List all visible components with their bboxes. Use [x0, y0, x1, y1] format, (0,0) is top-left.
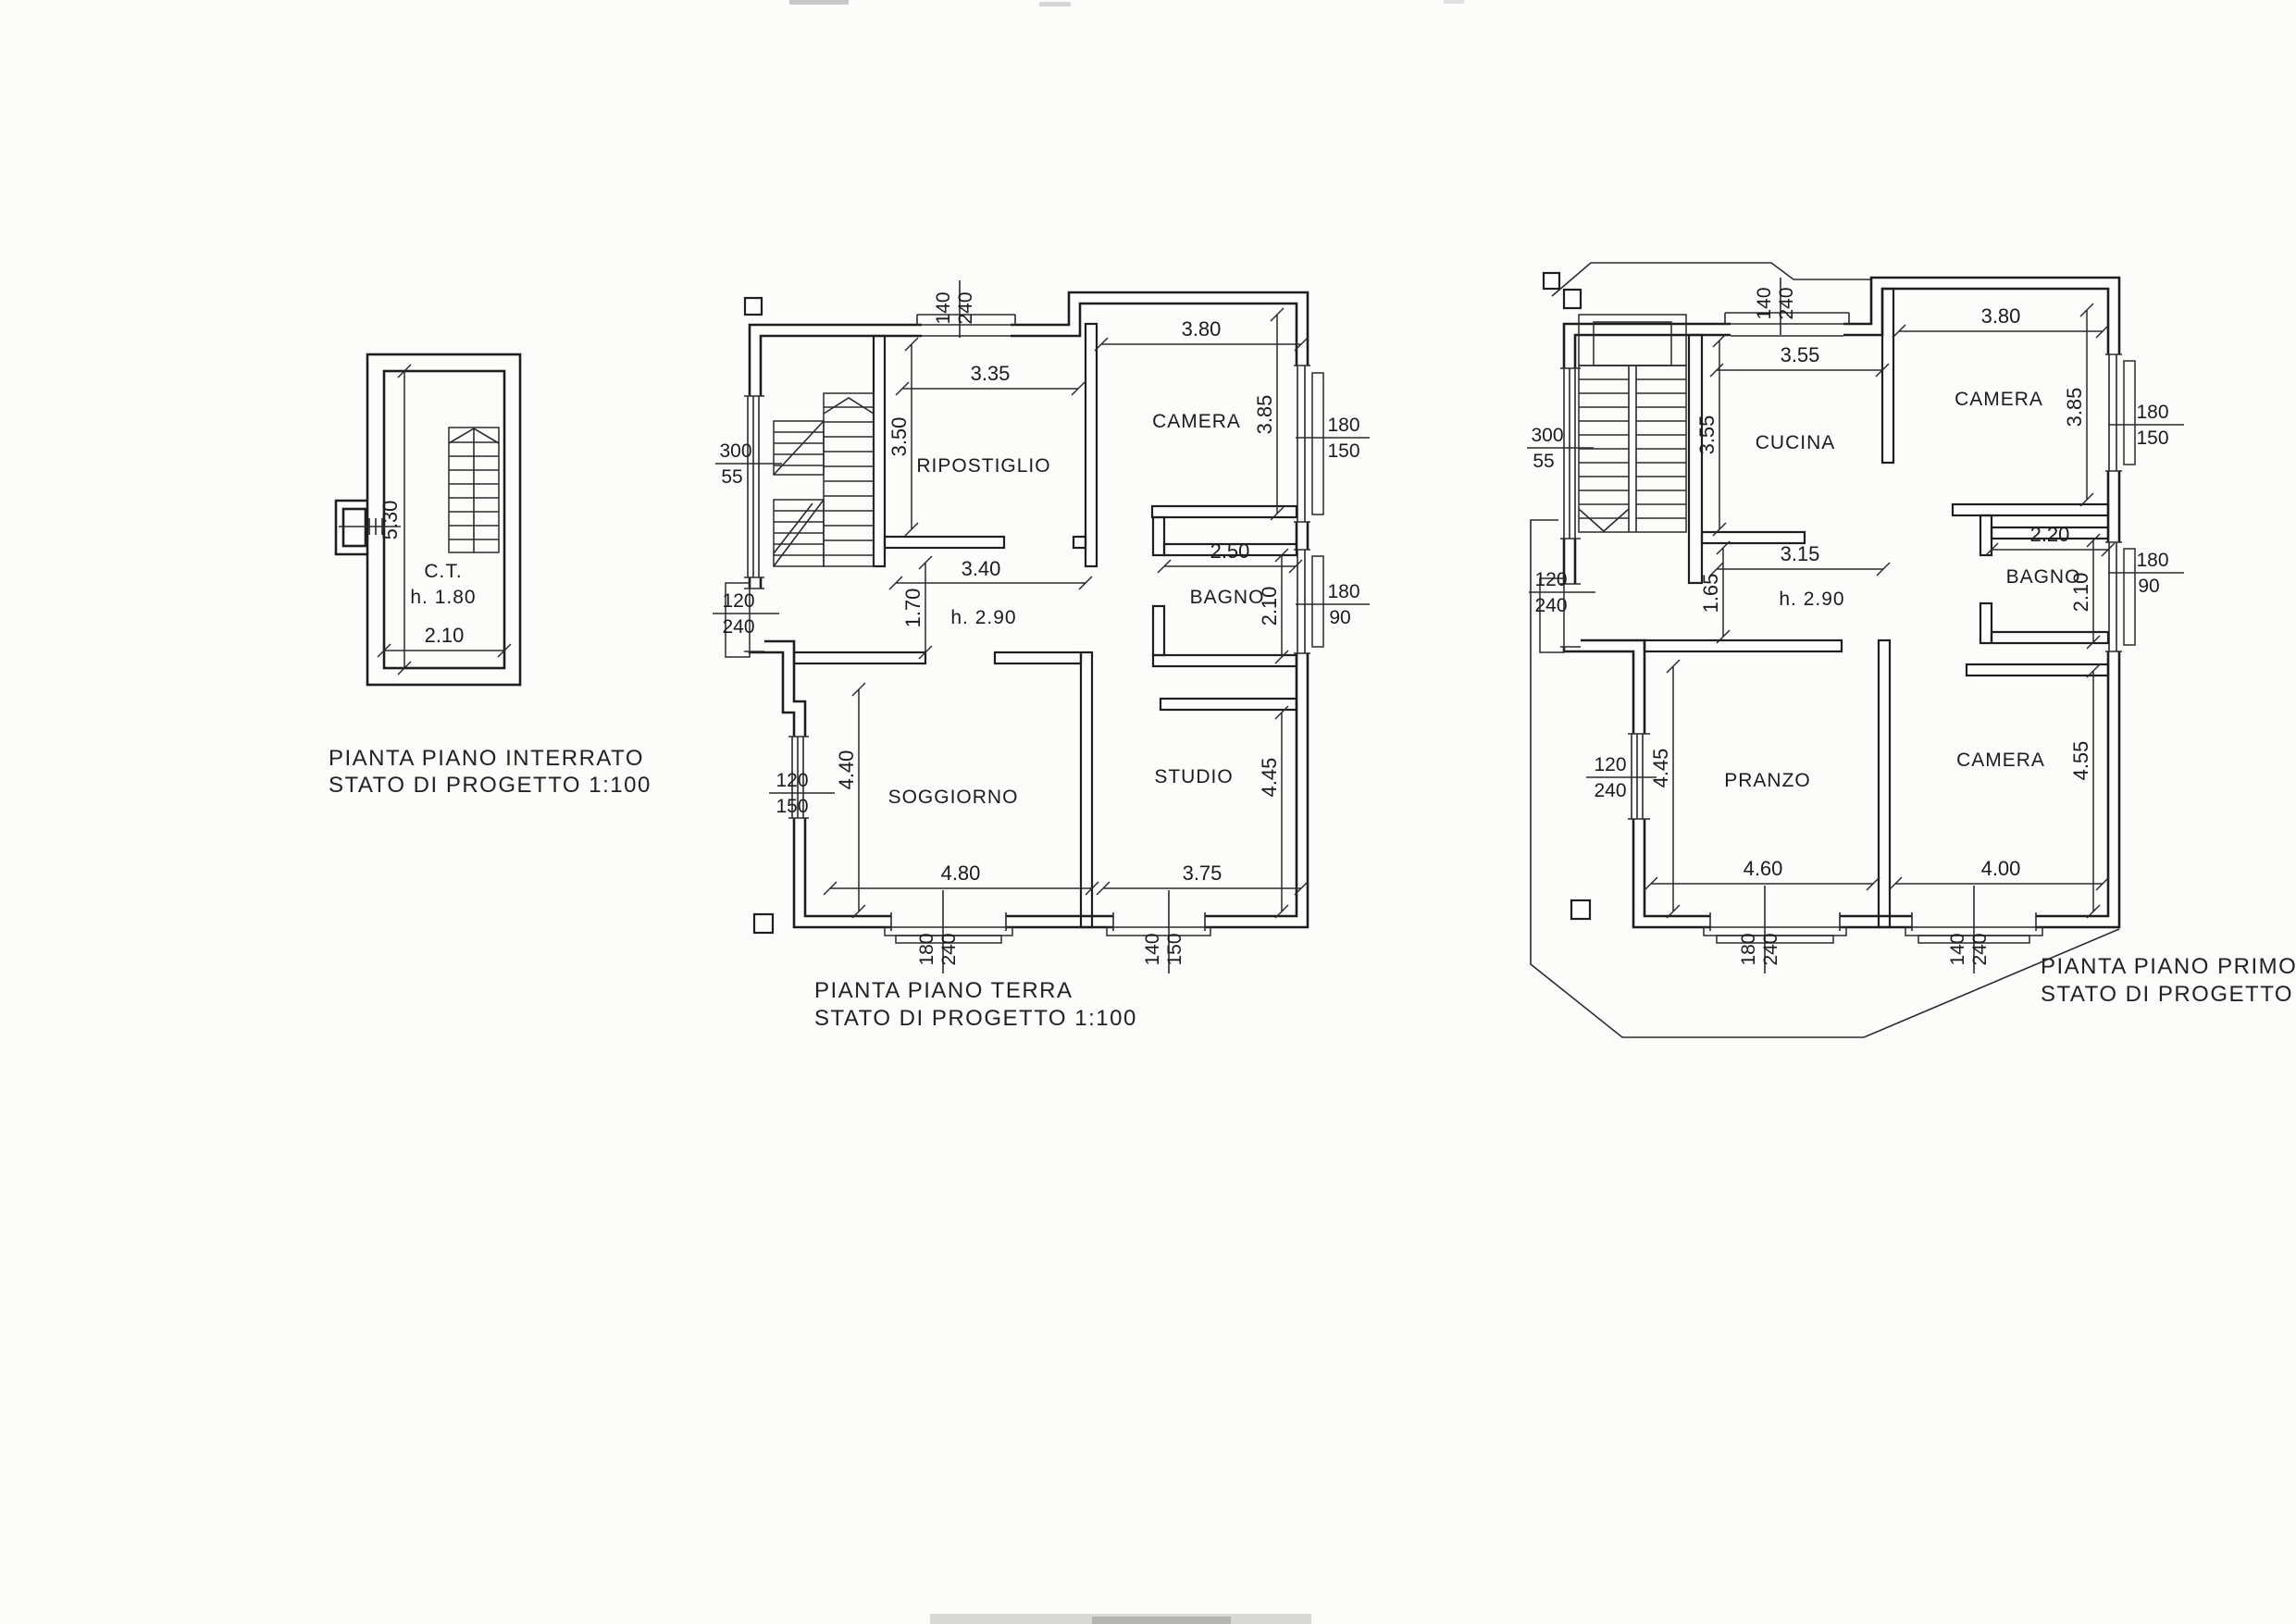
dim-camera-b-h: 4.55	[2069, 741, 2092, 781]
label-pranzo-win-n: 120	[1594, 754, 1626, 775]
label-camera-win-n-primo: 180	[2136, 402, 2168, 423]
room-label-camera-bottom: CAMERA	[1956, 750, 2045, 771]
dim-pranzo-w: 4.60	[1744, 857, 1783, 880]
height-label-terra: h. 2.90	[950, 607, 1016, 628]
room-label-soggiorno: SOGGIORNO	[888, 787, 1019, 808]
primo-caption: PIANTA PIANO PRIMO STATO DI PROGETTO	[2041, 954, 2296, 1007]
dim-camera-w: 3.80	[1182, 317, 1222, 341]
label-studio-win-d: 150	[1164, 933, 1185, 965]
dim-cucina-h: 3.55	[1695, 415, 1719, 455]
plan-terra: 3.35 3.50 3.40 3.80 3.85 2.50 2.10 1.70 …	[713, 280, 1370, 1031]
dim-cucina-bottom: 3.15	[1781, 542, 1820, 565]
dim-interrato-depth: 5.30	[379, 501, 402, 540]
dim-camera-top-h: 3.85	[2063, 388, 2086, 428]
room-label-pranzo: PRANZO	[1724, 770, 1811, 791]
label-top-door-d-primo: 240	[1776, 287, 1797, 319]
interrato-staircase	[449, 428, 499, 552]
label-bagno-win-d: 90	[1329, 607, 1350, 628]
label-pranzo-door-n: 180	[1738, 933, 1759, 965]
terra-staircase	[774, 393, 874, 566]
room-label-studio: STUDIO	[1154, 766, 1233, 787]
plan-primo: 3.55 3.55 3.15 1.65 3.80 3.85 2.20 2.10 …	[1527, 263, 2296, 1037]
primo-fraction-labels: 300 55 120 240 120 240 180 150 180 90 14…	[1527, 278, 2184, 973]
room-label-bagno-primo: BAGNO	[2006, 566, 2081, 588]
label-top-door-d: 240	[955, 291, 976, 324]
caption-terra-line1: PIANTA PIANO TERRA	[814, 978, 1074, 1003]
label-entry-door-n-primo: 120	[1534, 569, 1567, 590]
label-entry-door-d: 240	[722, 616, 754, 638]
caption-primo-line2: STATO DI PROGETTO	[2041, 982, 2293, 1007]
room-label-camera: CAMERA	[1152, 411, 1241, 432]
label-bagno-win-n: 180	[1327, 581, 1359, 602]
dim-ripostiglio-h: 3.50	[887, 417, 911, 457]
caption-interrato-line1: PIANTA PIANO INTERRATO	[329, 746, 644, 771]
label-stair-win-n-primo: 300	[1531, 425, 1563, 446]
terra-room-labels: RIPOSTIGLIO CAMERA BAGNO SOGGIORNO STUDI…	[888, 411, 1265, 808]
scanned-floor-plan-sheet: 5.30 2.10 C.T. h. 1.80 PIANTA PIANO INTE…	[0, 0, 2296, 1624]
interrato-caption: PIANTA PIANO INTERRATO STATO DI PROGETTO…	[329, 746, 652, 798]
terra-dimensions: 3.35 3.50 3.40 3.80 3.85 2.50 2.10 1.70 …	[824, 308, 1308, 918]
label-sogg-win-n: 120	[776, 770, 808, 791]
label-bagno-win-n-primo: 180	[2136, 550, 2168, 571]
dim-camera-b-w: 4.00	[1981, 857, 2021, 880]
dim-ripostiglio-w: 3.35	[971, 362, 1011, 385]
dim-camera-h: 3.85	[1253, 395, 1276, 435]
label-camera-b-door-d: 240	[1969, 933, 1991, 965]
label-sogg-win-d: 150	[776, 796, 808, 817]
dim-ripostiglio-bottom: 3.40	[962, 557, 1001, 580]
scan-artifacts	[789, 0, 1464, 1624]
dim-bagno-w: 2.50	[1210, 539, 1250, 563]
caption-terra-line2: STATO DI PROGETTO 1:100	[814, 1006, 1137, 1031]
interrato-dimensions: 5.30 2.10	[378, 365, 511, 675]
primo-staircase	[1579, 315, 1686, 532]
terra-caption: PIANTA PIANO TERRA STATO DI PROGETTO 1:1…	[814, 978, 1137, 1031]
label-camera-b-door-n: 140	[1947, 933, 1968, 965]
label-sogg-door-n: 180	[916, 933, 937, 965]
dim-studio-w: 3.75	[1183, 862, 1222, 885]
terra-walls	[750, 292, 1308, 927]
dim-camera-top-w: 3.80	[1981, 304, 2021, 328]
dim-corridor-primo: 1.65	[1699, 574, 1722, 614]
terra-windows-doors	[726, 315, 1323, 943]
caption-interrato-line2: STATO DI PROGETTO 1:100	[329, 773, 652, 798]
dim-corridor: 1.70	[901, 589, 925, 628]
room-height-ct: h. 1.80	[410, 587, 476, 608]
dim-interrato-width: 2.10	[425, 624, 465, 647]
plan-interrato: 5.30 2.10 C.T. h. 1.80 PIANTA PIANO INTE…	[329, 354, 652, 798]
room-label-cucina: CUCINA	[1756, 432, 1836, 453]
label-studio-win-n: 140	[1142, 933, 1163, 965]
label-bagno-win-d-primo: 90	[2138, 576, 2159, 597]
dim-studio-h: 4.45	[1258, 758, 1281, 798]
label-stair-win-n: 300	[719, 440, 751, 462]
label-top-door-n-primo: 140	[1754, 287, 1775, 319]
interrato-room-labels: C.T. h. 1.80	[410, 561, 476, 608]
caption-primo-line1: PIANTA PIANO PRIMO	[2041, 954, 2296, 979]
room-label-ripostiglio: RIPOSTIGLIO	[916, 455, 1050, 477]
label-pranzo-win-d: 240	[1594, 780, 1626, 801]
dim-cucina-w: 3.55	[1781, 343, 1820, 366]
label-sogg-door-d: 240	[938, 933, 960, 965]
label-entry-door-d-primo: 240	[1534, 595, 1567, 616]
dim-sogg-h: 4.40	[835, 750, 858, 790]
label-camera-win-n: 180	[1327, 415, 1359, 436]
label-pranzo-door-d: 240	[1760, 933, 1781, 965]
dim-sogg-w: 4.80	[941, 862, 981, 885]
primo-room-labels: CUCINA CAMERA BAGNO PRANZO CAMERA h. 2.9…	[1724, 389, 2080, 791]
height-label-primo: h. 2.90	[1779, 589, 1844, 610]
terra-fraction-labels: 300 55 120 240 120 150 180 150 180 90 14…	[713, 280, 1370, 973]
label-top-door-n: 140	[933, 291, 954, 324]
label-stair-win-d-primo: 55	[1533, 451, 1554, 472]
dim-bagno-w-primo: 2.20	[2030, 523, 2070, 546]
label-camera-win-d-primo: 150	[2136, 428, 2168, 449]
room-label-ct: C.T.	[424, 561, 462, 582]
room-label-camera-top: CAMERA	[1955, 389, 2043, 410]
label-camera-win-d: 150	[1327, 440, 1359, 462]
label-entry-door-n: 120	[722, 590, 754, 612]
room-label-bagno: BAGNO	[1190, 587, 1265, 608]
dim-pranzo-h: 4.45	[1649, 749, 1672, 788]
label-stair-win-d: 55	[721, 466, 742, 488]
